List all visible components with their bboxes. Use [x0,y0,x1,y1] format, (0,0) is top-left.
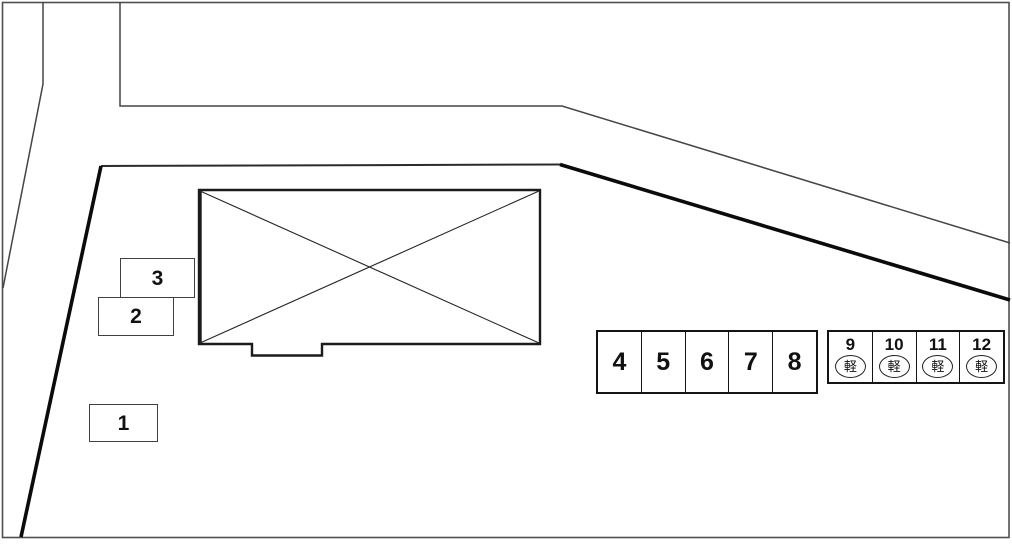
parking-space-6: 6 [686,332,730,392]
left-road-outer-edge [3,2,43,288]
kei-label: 軽 [888,360,901,373]
parking-space-2: 2 [98,297,174,336]
space-number: 4 [612,350,626,375]
space-number: 8 [788,350,802,375]
parking-space-12: 12 軽 [960,332,1003,382]
space-number: 12 [972,336,991,354]
kei-circle-badge: 軽 [835,355,866,378]
parking-space-7: 7 [729,332,773,392]
kei-label: 軽 [975,360,988,373]
parking-lot-diagram: 1 2 3 4 5 6 7 8 9 軽 10 [0,0,1012,544]
parking-row-kei: 9 軽 10 軽 11 軽 12 軽 [827,330,1005,384]
parking-row-standard: 4 5 6 7 8 [596,330,818,394]
space-number: 9 [846,336,855,354]
space-number: 11 [929,336,947,354]
space-number: 10 [885,336,904,354]
space-number: 2 [130,306,142,327]
kei-label: 軽 [931,360,944,373]
parking-space-1: 1 [89,404,158,442]
lot-boundary-top [101,165,560,167]
kei-circle-badge: 軽 [966,355,997,378]
space-number: 3 [152,268,164,289]
building-outline [199,190,540,356]
kei-circle-badge: 軽 [879,355,910,378]
kei-label: 軽 [844,360,857,373]
parking-space-8: 8 [773,332,816,392]
parking-space-9: 9 軽 [829,332,873,382]
space-number: 1 [118,413,130,434]
space-number: 7 [744,350,758,375]
parking-space-3: 3 [120,258,195,298]
lot-boundary-right-diagonal [560,165,1010,301]
kei-circle-badge: 軽 [922,355,953,378]
parking-space-4: 4 [598,332,642,392]
space-number: 5 [656,350,670,375]
space-number: 6 [700,350,714,375]
parking-space-10: 10 軽 [873,332,917,382]
parking-space-11: 11 軽 [917,332,961,382]
lot-boundary-left-diagonal [21,166,101,537]
parking-space-5: 5 [642,332,686,392]
